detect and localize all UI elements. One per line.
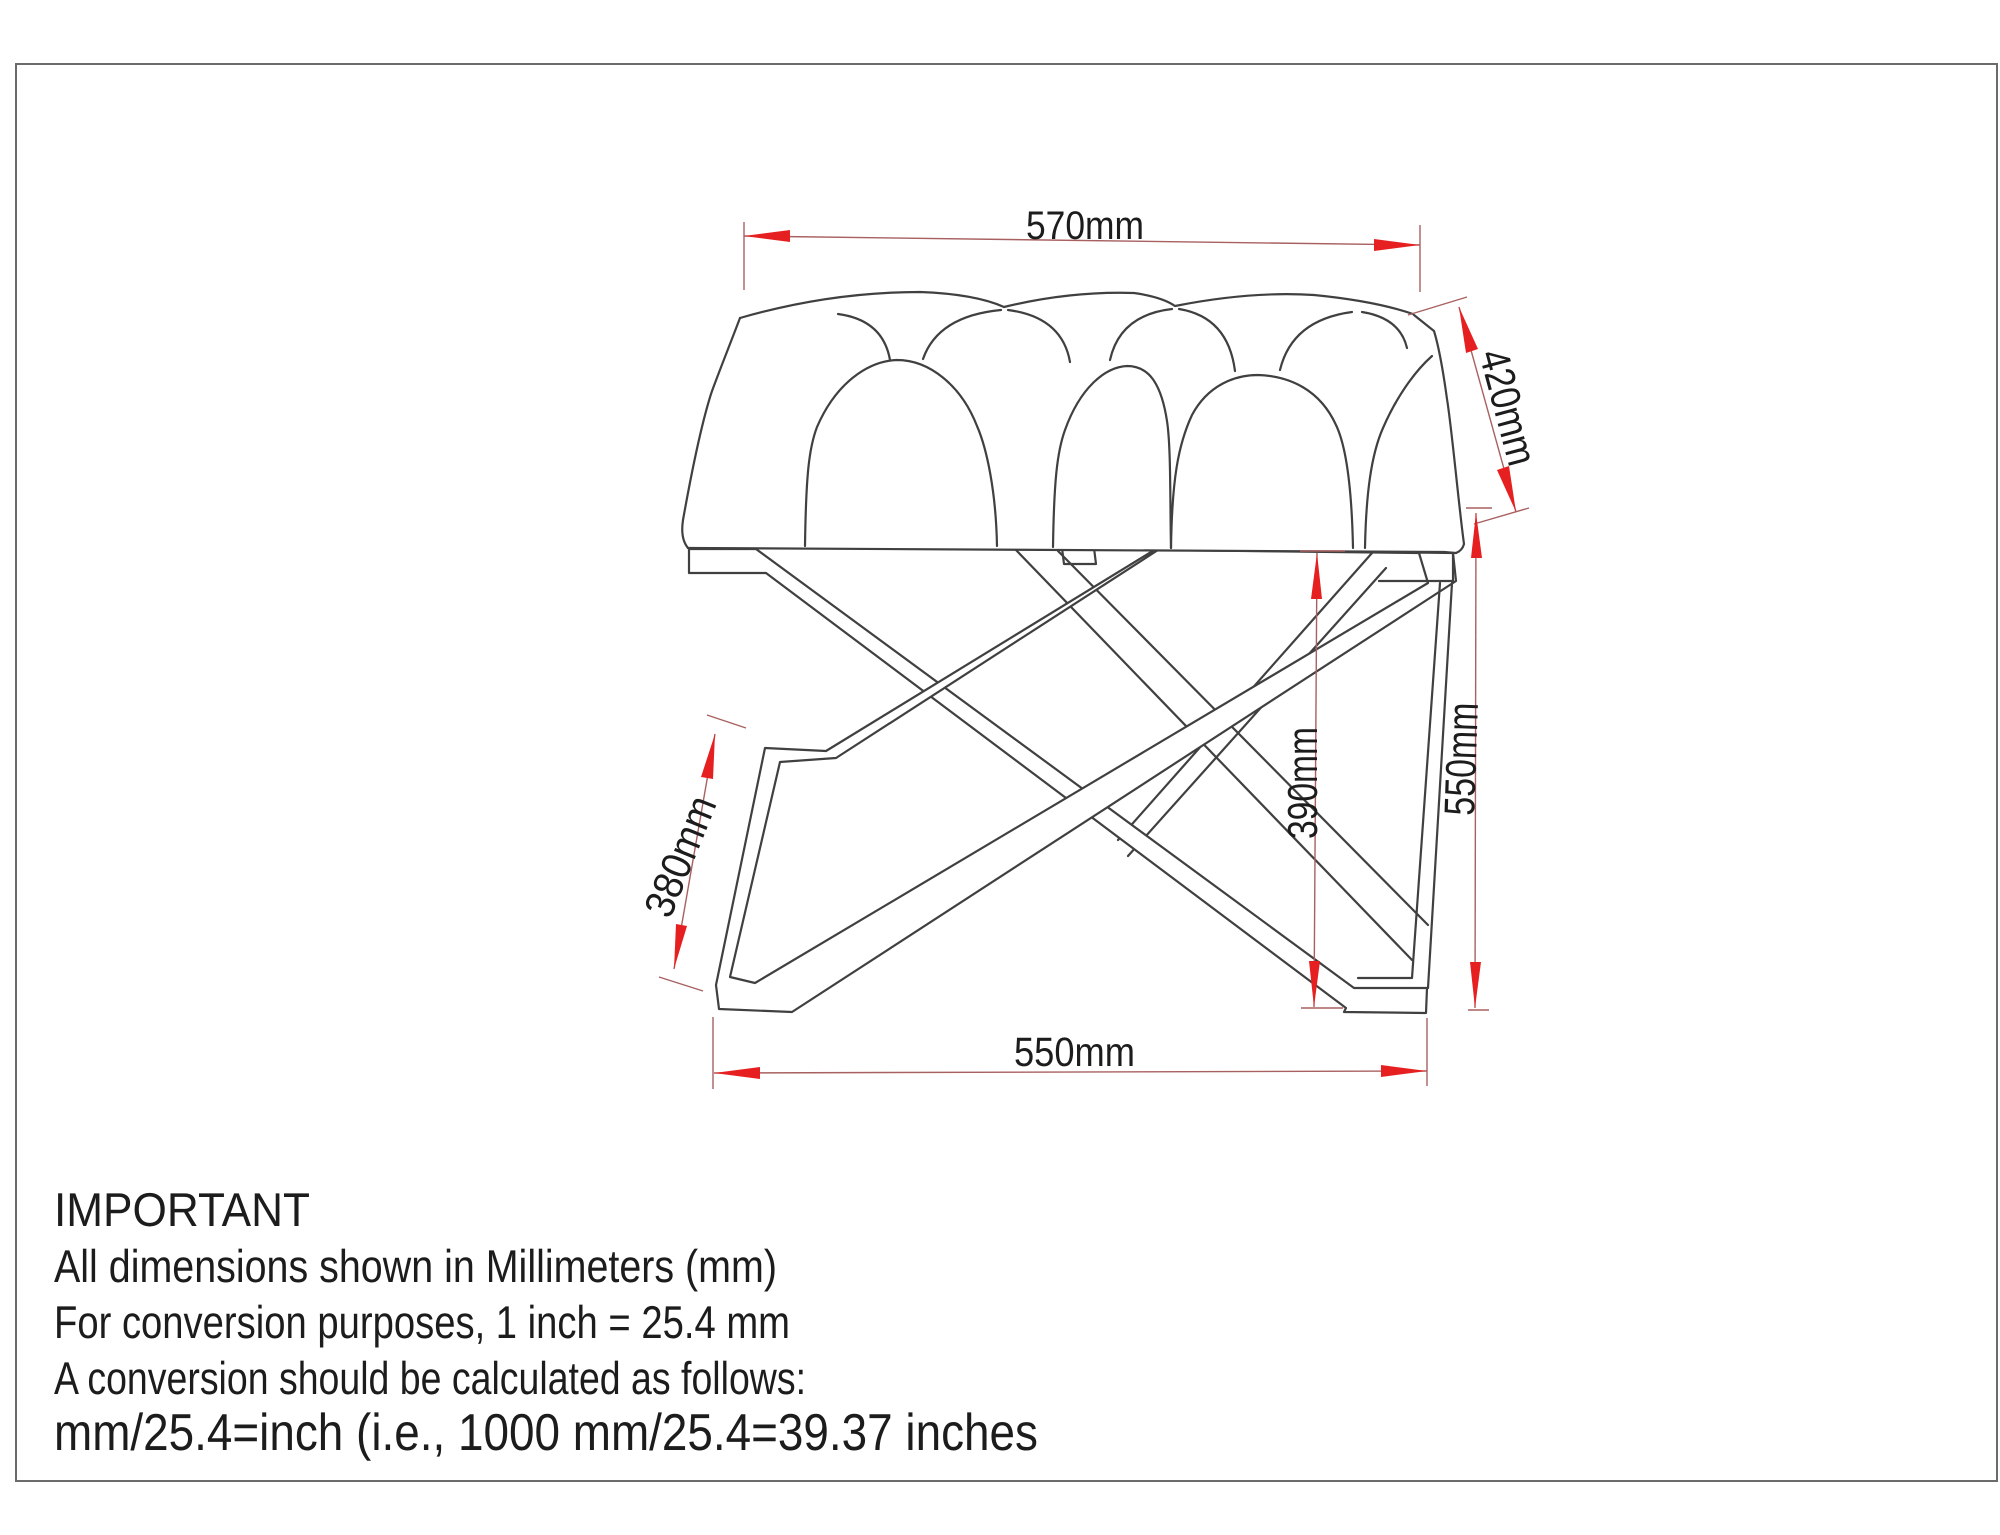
svg-text:420mm: 420mm xyxy=(1470,344,1546,470)
svg-text:A conversion should be calcula: A conversion should be calculated as fol… xyxy=(54,1352,806,1404)
svg-text:All dimensions shown in Millim: All dimensions shown in Millimeters (mm) xyxy=(54,1240,777,1292)
svg-text:550mm: 550mm xyxy=(1014,1029,1135,1075)
svg-text:380mm: 380mm xyxy=(635,789,726,923)
svg-text:570mm: 570mm xyxy=(1026,204,1144,248)
svg-text:550mm: 550mm xyxy=(1436,702,1488,817)
svg-text:390mm: 390mm xyxy=(1279,727,1326,839)
svg-text:mm/25.4=inch (i.e., 1000 mm/25: mm/25.4=inch (i.e., 1000 mm/25.4=39.37 i… xyxy=(54,1404,1038,1462)
svg-text:For conversion purposes, 1 inc: For conversion purposes, 1 inch = 25.4 m… xyxy=(54,1296,790,1348)
svg-text:IMPORTANT: IMPORTANT xyxy=(54,1184,310,1237)
